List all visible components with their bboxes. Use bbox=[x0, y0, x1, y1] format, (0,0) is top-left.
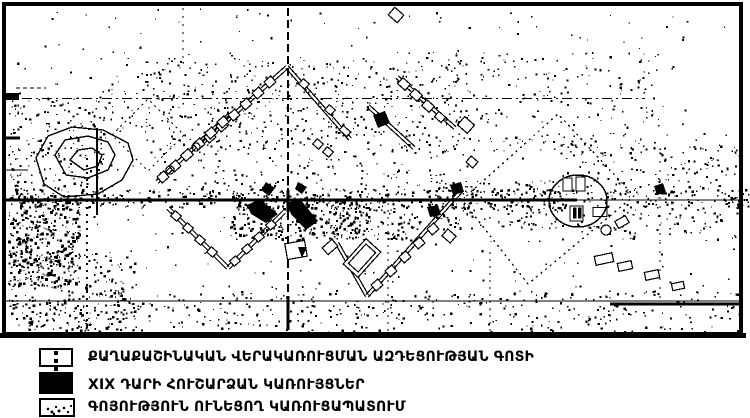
legend-label-xix-monuments: XIX ԴԱՐԻ ՀՈՒՇԱՐՁԱՆ ԿԱՌՈՒՅՑՆԵՐ bbox=[88, 374, 365, 396]
site-plan-map-svg bbox=[0, 0, 750, 338]
legend-label-existing-development: ԳՈՅՈՒԹՅՈՒՆ ՈՒՆԵՑՈՂ ԿԱՌՈՒՑԱՊԱՏՈՒՄ bbox=[88, 398, 406, 417]
map-legend: ՔԱՂԱՔԱՇԻՆԱԿԱՆ ՎԵՐԱԿԱՌՈՒՑՄԱՆ ԱԶԴԵՑՈՒԹՅԱՆ … bbox=[0, 338, 750, 418]
legend-label-influence-zone: ՔԱՂԱՔԱՇԻՆԱԿԱՆ ՎԵՐԱԿԱՌՈՒՑՄԱՆ ԱԶԴԵՑՈՒԹՅԱՆ … bbox=[88, 348, 534, 367]
scanned-site-plan-page: { "colors": { "ink": "#000000", "paper":… bbox=[0, 0, 750, 418]
xix-monuments-swatch-icon bbox=[39, 372, 73, 394]
existing-development-swatch-icon bbox=[39, 398, 75, 417]
site-plan-map bbox=[0, 0, 750, 338]
influence-zone-swatch-icon bbox=[39, 348, 73, 367]
